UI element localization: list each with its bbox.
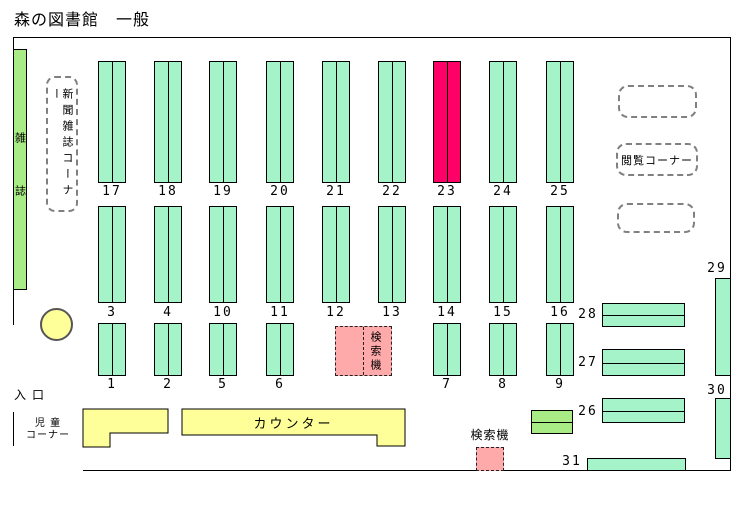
children-counter-shape (83, 409, 168, 447)
counter-label: カウンター (182, 409, 405, 435)
library-floor-map: 森の図書館 一般 雑誌 新聞雑誌コーナー 1718192021222324253… (0, 0, 748, 506)
